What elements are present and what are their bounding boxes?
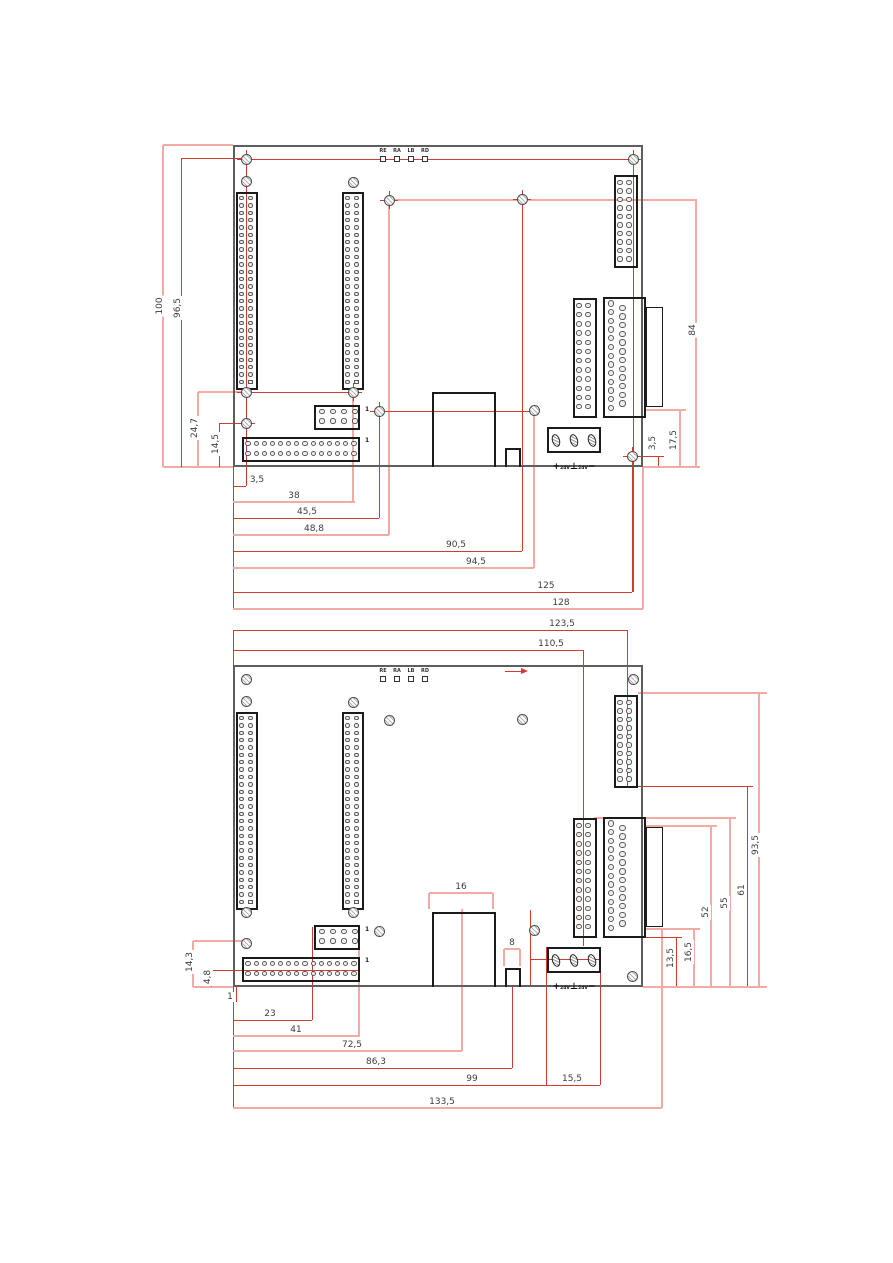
pin-pad — [626, 717, 631, 722]
pin-pad — [626, 700, 631, 705]
pin-one-marker: 1 — [365, 437, 369, 444]
pin-pad — [239, 723, 243, 727]
pin-1-square-pad — [354, 900, 358, 904]
pin-pad — [576, 869, 582, 875]
pin-pad — [245, 971, 250, 976]
pin-pad — [576, 321, 582, 327]
pin-pad — [248, 819, 252, 823]
pin-pad — [345, 775, 349, 779]
pin-pad — [352, 418, 357, 423]
pin-pad — [585, 841, 591, 847]
pin-pad — [239, 834, 243, 838]
pin-pad — [354, 878, 358, 882]
dimension-line-23 — [233, 1020, 312, 1021]
dimension-line-3,5 — [233, 467, 234, 610]
dimension-line-86,3 — [512, 985, 513, 1068]
dimension-line-16,5 — [644, 928, 700, 930]
pin-pad — [617, 759, 622, 764]
led-label: RD — [421, 668, 429, 674]
pin-pad — [248, 797, 252, 801]
pin-pad — [239, 900, 243, 904]
pin-pad — [585, 395, 591, 401]
pin-pad — [619, 833, 625, 839]
pin-pad — [626, 222, 631, 227]
pin-pad — [617, 197, 622, 202]
pin-pad — [345, 856, 349, 860]
mounting-hole — [241, 907, 252, 918]
mounting-hole — [374, 926, 385, 937]
mounting-hole — [241, 696, 252, 707]
pin-pad — [354, 358, 358, 362]
pin-pad — [239, 233, 243, 237]
pin-pad — [626, 725, 631, 730]
led-indicator — [394, 156, 400, 162]
pin-pad — [311, 961, 316, 966]
pin-pad — [608, 361, 614, 367]
pin-pad — [319, 971, 324, 976]
pin-pad — [248, 870, 252, 874]
pin-pad — [248, 753, 252, 757]
pin-pad — [619, 348, 625, 354]
pin-pad — [608, 881, 614, 887]
mounting-hole — [348, 177, 359, 188]
pin-pad — [345, 841, 349, 845]
pin-pad — [617, 180, 622, 185]
pin-pad — [248, 336, 252, 340]
dsub-connector-flange — [646, 307, 663, 407]
pin-pad — [345, 292, 349, 296]
pin-pad — [626, 776, 631, 781]
pin-pad — [354, 812, 358, 816]
mounting-hole — [517, 714, 528, 725]
dimension-value: 48,8 — [302, 524, 326, 534]
rj-jack-outline — [432, 912, 496, 987]
dimension-value: 128 — [550, 598, 571, 608]
pin-pad — [626, 768, 631, 773]
led-indicator — [408, 156, 414, 162]
led-label: LB — [408, 668, 415, 674]
pin-pad — [245, 441, 250, 446]
pin-pad — [608, 907, 614, 913]
pin-pad — [354, 372, 358, 376]
pin-pad — [617, 700, 622, 705]
dimension-line-110,5 — [233, 650, 583, 651]
pin-pad — [345, 233, 349, 237]
pin-pad — [239, 826, 243, 830]
pin-pad — [248, 863, 252, 867]
pin-pad — [248, 203, 252, 207]
pin-pad — [245, 451, 250, 456]
pin-pad — [341, 938, 346, 943]
pin-pad — [248, 247, 252, 251]
pin-pad — [239, 745, 243, 749]
dimension-line-61 — [638, 786, 753, 787]
pin-pad — [302, 971, 307, 976]
pin-pad — [345, 211, 349, 215]
mounting-hole — [241, 387, 252, 398]
pin-pad — [345, 299, 349, 303]
pin-pad — [330, 418, 335, 423]
pin-pad — [626, 197, 631, 202]
pin-pad — [311, 441, 316, 446]
pin-pad — [319, 938, 324, 943]
dimension-value: 86,3 — [364, 1057, 388, 1067]
pin-pad — [248, 841, 252, 845]
pin-one-marker: 1 — [365, 926, 369, 933]
pin-pad — [608, 899, 614, 905]
pin-pad — [345, 834, 349, 838]
pin-pad — [239, 203, 243, 207]
mounting-hole — [529, 405, 540, 416]
pin-pad — [619, 357, 625, 363]
mounting-hole — [384, 195, 395, 206]
pin-pad — [345, 870, 349, 874]
dimension-line-133,5 — [233, 1107, 662, 1109]
pin-pad — [345, 380, 349, 384]
pin-pad — [239, 812, 243, 816]
dimension-line-3,5 — [233, 486, 246, 487]
pin-pad — [354, 716, 358, 720]
pin-pad — [239, 797, 243, 801]
dimension-line-133,5 — [661, 929, 663, 1108]
pin-pad — [248, 262, 252, 266]
pin-pad — [327, 451, 332, 456]
pin-pad — [248, 321, 252, 325]
pin-pad — [345, 723, 349, 727]
mounting-hole — [374, 406, 385, 417]
pin-pad — [354, 247, 358, 251]
pin-pad — [619, 305, 625, 311]
dimension-line-48,8 — [233, 534, 389, 536]
pin-pad — [619, 859, 625, 865]
pin-pad — [617, 205, 622, 210]
dimension-value: 52 — [701, 904, 711, 919]
led-label: LB — [408, 148, 415, 154]
pin-pad — [608, 326, 614, 332]
dimension-value: 41 — [288, 1025, 303, 1035]
pin-pad — [262, 441, 267, 446]
pin-pad — [248, 350, 252, 354]
mounting-hole — [348, 387, 359, 398]
dimension-value: 110,5 — [536, 639, 566, 649]
pin-pad — [262, 971, 267, 976]
led-label: RA — [393, 668, 401, 674]
dimension-line-86,3 — [233, 1068, 512, 1069]
pin-pad — [239, 863, 243, 867]
pin-pad — [248, 834, 252, 838]
pin-pad — [345, 262, 349, 266]
dimension-value: 14,5 — [211, 432, 221, 456]
pin-pad — [248, 270, 252, 274]
pcb-dimension-drawing: 10096,524,714,53,53845,548,890,594,51251… — [0, 0, 893, 1263]
mounting-hole — [529, 925, 540, 936]
pin-pad — [354, 306, 358, 310]
dimension-value: 99 — [464, 1074, 479, 1084]
pin-pad — [239, 892, 243, 896]
mounting-hole — [628, 674, 639, 685]
pin-pad — [619, 374, 625, 380]
pin-pad — [345, 892, 349, 896]
pin-pad — [248, 848, 252, 852]
pin-pad — [254, 441, 259, 446]
mounting-hole — [241, 674, 252, 685]
pin-pad — [254, 961, 259, 966]
pin-pad — [626, 256, 631, 261]
pin-pad — [576, 349, 582, 355]
pin-pad — [617, 751, 622, 756]
pin-pad — [345, 372, 349, 376]
pin-pad — [239, 716, 243, 720]
pin-pad — [248, 328, 252, 332]
dimension-value: 93,5 — [751, 833, 761, 857]
dimension-value: 16,5 — [684, 940, 694, 964]
pin-pad — [617, 231, 622, 236]
pin-pad — [354, 826, 358, 830]
pin-pad — [354, 804, 358, 808]
pin-pad — [319, 409, 324, 414]
reference-arrow-icon — [521, 668, 528, 674]
pin-pad — [619, 825, 625, 831]
pin-pad — [319, 441, 324, 446]
pin-pad — [619, 877, 625, 883]
pin-pad — [345, 900, 349, 904]
pin-pad — [302, 961, 307, 966]
pin-pad — [354, 211, 358, 215]
pin-pad — [576, 896, 582, 902]
pin-pad — [345, 350, 349, 354]
pin-pad — [248, 790, 252, 794]
pin-pad — [585, 915, 591, 921]
mounting-hole — [241, 418, 252, 429]
pin-pad — [585, 340, 591, 346]
pin-pad — [608, 300, 614, 306]
pin-pad — [585, 850, 591, 856]
pin-pad — [248, 804, 252, 808]
pin-pad — [345, 277, 349, 281]
dimension-value: 84 — [688, 322, 698, 337]
pin-pad — [341, 929, 346, 934]
dimension-line-41 — [233, 1035, 360, 1037]
pin-pad — [239, 314, 243, 318]
pin-pad — [345, 826, 349, 830]
dimension-value: 100 — [155, 295, 165, 316]
led-indicator — [422, 156, 428, 162]
dimension-value: 17,5 — [669, 428, 679, 452]
pin-pad — [576, 915, 582, 921]
pin-pad — [617, 188, 622, 193]
pin-pad — [617, 742, 622, 747]
pin-pad — [345, 767, 349, 771]
dimension-line-123,5 — [233, 630, 234, 665]
pin-pad — [319, 961, 324, 966]
pin-pad — [345, 731, 349, 735]
pin-pad — [585, 906, 591, 912]
pin-pad — [626, 214, 631, 219]
pin-pad — [617, 768, 622, 773]
pin-pad — [239, 878, 243, 882]
pin-pad — [354, 723, 358, 727]
dimension-line-93,5 — [638, 692, 767, 694]
pin-pad — [345, 284, 349, 288]
pin-pad — [576, 860, 582, 866]
pin-pad — [608, 846, 614, 852]
pin-pad — [354, 797, 358, 801]
dimension-line-90,5 — [233, 551, 522, 552]
pin-pad — [354, 262, 358, 266]
led-indicator — [422, 676, 428, 682]
dimension-line-15,5 — [546, 1085, 600, 1086]
dimension-value: 14,3 — [185, 950, 195, 974]
pin-pad — [327, 971, 332, 976]
pin-pad — [351, 961, 356, 966]
pin-pad — [239, 848, 243, 852]
pin-pad — [239, 262, 243, 266]
dimension-line-99 — [233, 1085, 546, 1086]
pin-pad — [330, 929, 335, 934]
pin-pad — [239, 225, 243, 229]
pin-pad — [352, 938, 357, 943]
dimension-line-123,5 — [233, 630, 627, 631]
pin-pad — [354, 745, 358, 749]
dimension-line-1 — [233, 987, 234, 1108]
pin-pad — [585, 386, 591, 392]
pin-1-square-pad — [354, 380, 358, 384]
pin-pad — [617, 717, 622, 722]
led-indicator — [380, 156, 386, 162]
pin-pad — [354, 321, 358, 325]
dimension-value: 45,5 — [295, 507, 319, 517]
pin-pad — [345, 878, 349, 882]
pin-pad — [330, 409, 335, 414]
pin-pad — [354, 731, 358, 735]
pin-pad — [619, 903, 625, 909]
dimension-value: 94,5 — [464, 557, 488, 567]
pin-pad — [239, 284, 243, 288]
pin-pad — [619, 851, 625, 857]
pin-pad — [354, 336, 358, 340]
dimension-value: 8 — [507, 938, 517, 948]
dimension-line-45,5 — [233, 518, 379, 519]
pin-pad — [354, 255, 358, 259]
pin-pad — [354, 848, 358, 852]
pin-pad — [248, 284, 252, 288]
pin-pad — [617, 734, 622, 739]
dimension-line-94,5 — [233, 567, 534, 569]
pin-pad — [585, 321, 591, 327]
pin-pad — [278, 971, 283, 976]
pin-pad — [619, 339, 625, 345]
pin-pad — [345, 225, 349, 229]
pin-pad — [354, 790, 358, 794]
pin-pad — [576, 906, 582, 912]
pin-pad — [608, 387, 614, 393]
pin-pad — [270, 451, 275, 456]
power-terminal-label: +24V⊥24V− — [553, 974, 596, 993]
pin-pad — [345, 203, 349, 207]
pin-pad — [239, 841, 243, 845]
pin-pad — [354, 328, 358, 332]
dimension-value: 4,8 — [203, 968, 213, 986]
pin-pad — [239, 804, 243, 808]
pin-pad — [619, 894, 625, 900]
small-connector-outline — [505, 968, 521, 987]
pin-pad — [345, 863, 349, 867]
pin-pad — [239, 306, 243, 310]
pin-pad — [248, 767, 252, 771]
pin-pad — [626, 759, 631, 764]
pin-pad — [585, 887, 591, 893]
pin-pad — [239, 731, 243, 735]
dimension-value: 3,5 — [648, 434, 658, 452]
pin-pad — [354, 225, 358, 229]
pin-pad — [262, 451, 267, 456]
pin-header-2x14 — [242, 957, 360, 982]
pin-pad — [341, 409, 346, 414]
pin-pad — [354, 834, 358, 838]
power-terminal-label: +24V⊥24V− — [553, 454, 596, 473]
dimension-value: 123,5 — [547, 619, 577, 629]
pin-pad — [248, 299, 252, 303]
pin-pad — [248, 358, 252, 362]
dimension-value: 38 — [286, 491, 301, 501]
pin-pad — [351, 441, 356, 446]
pin-pad — [354, 767, 358, 771]
pin-pad — [239, 255, 243, 259]
pin-pad — [576, 386, 582, 392]
pin-pad — [248, 878, 252, 882]
pin-pad — [354, 350, 358, 354]
pin-pad — [239, 358, 243, 362]
pin-pad — [345, 328, 349, 332]
pin-pad — [239, 775, 243, 779]
pin-pad — [245, 961, 250, 966]
pin-1-square-pad — [248, 380, 252, 384]
pin-pad — [617, 256, 622, 261]
dimension-value: 96,5 — [173, 296, 183, 320]
pin-pad — [585, 303, 591, 309]
pin-pad — [576, 850, 582, 856]
pin-pad — [341, 418, 346, 423]
pin-pad — [345, 753, 349, 757]
pin-pad — [239, 380, 243, 384]
dimension-line-93,5 — [643, 986, 767, 988]
small-connector-outline — [505, 448, 521, 467]
pin-pad — [248, 812, 252, 816]
pin-pad — [354, 277, 358, 281]
pin-pad — [239, 819, 243, 823]
pin-pad — [585, 823, 591, 829]
pin-pad — [617, 776, 622, 781]
pin-pad — [345, 358, 349, 362]
dimension-line-17,5 — [643, 466, 700, 468]
pin-pad — [619, 868, 625, 874]
pin-pad — [248, 211, 252, 215]
pin-pad — [354, 892, 358, 896]
pin-pad — [585, 376, 591, 382]
pin-one-marker: 1 — [365, 406, 369, 413]
pin-pad — [617, 708, 622, 713]
dimension-value: 125 — [535, 581, 556, 591]
pin-1-square-pad — [248, 900, 252, 904]
mounting-hole — [627, 451, 638, 462]
pin-pad — [248, 306, 252, 310]
led-label: RD — [421, 148, 429, 154]
pin-pad — [345, 819, 349, 823]
dimension-line-13,5 — [640, 937, 682, 938]
led-indicator — [408, 676, 414, 682]
pin-pad — [345, 247, 349, 251]
pin-pad — [351, 451, 356, 456]
